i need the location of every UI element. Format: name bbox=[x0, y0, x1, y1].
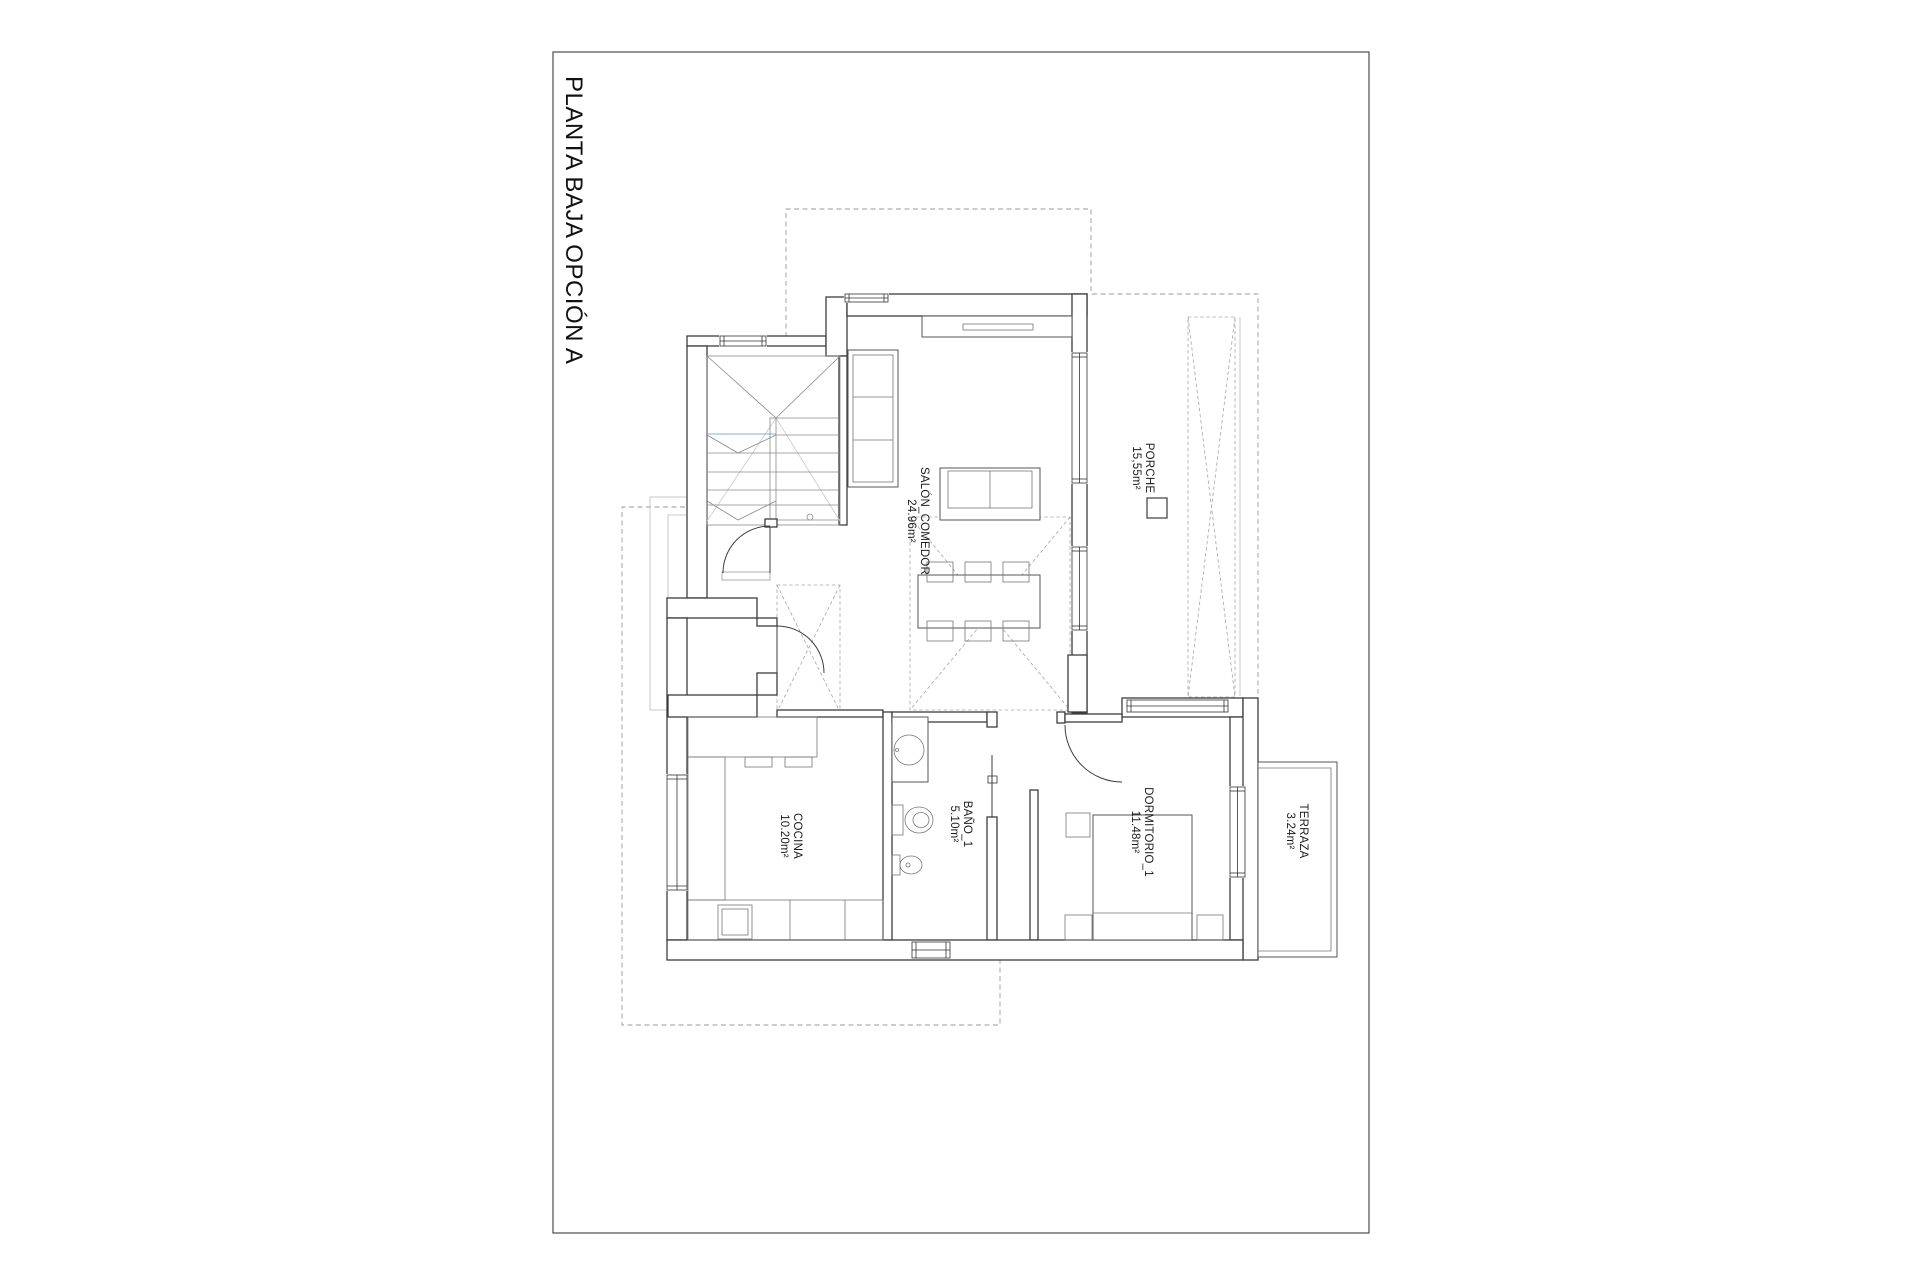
floor-plan-svg: PLANTA BAJA OPCIÓN A bbox=[0, 0, 1920, 1280]
room-area: 11.48m² bbox=[1129, 811, 1141, 854]
room-label-porche: PORCHE 15,55m² bbox=[1130, 443, 1155, 494]
dining-table bbox=[918, 575, 1040, 628]
room-name: COCINA bbox=[791, 813, 803, 859]
room-label-cocina: COCINA 10.20m² bbox=[778, 813, 803, 859]
room-name: DORMITORIO_1 bbox=[1142, 787, 1154, 877]
window-bano-south bbox=[911, 941, 951, 959]
room-name: TERRAZA bbox=[1297, 803, 1309, 858]
sofa bbox=[940, 468, 1040, 520]
window-dormitorio-east bbox=[1229, 786, 1246, 878]
porche-pillar bbox=[1147, 498, 1167, 518]
drawing-canvas: PLANTA BAJA OPCIÓN A bbox=[0, 0, 1920, 1280]
room-area: 10.20m² bbox=[778, 814, 790, 858]
room-name: PORCHE bbox=[1143, 443, 1155, 494]
room-name: SALÓN_COMEDOR bbox=[918, 467, 931, 575]
sheet-title: PLANTA BAJA OPCIÓN A bbox=[560, 76, 587, 364]
bath-vanity bbox=[892, 717, 928, 782]
room-area: 5.10m² bbox=[948, 806, 960, 843]
window-stair bbox=[719, 335, 767, 347]
window-salon-east-2 bbox=[1071, 546, 1088, 631]
room-area: 15,55m² bbox=[1130, 446, 1142, 490]
terraza-slab bbox=[1258, 762, 1337, 957]
shelf-unit bbox=[848, 350, 898, 487]
window-salon-clerestory bbox=[844, 293, 889, 303]
tv-bench bbox=[922, 316, 1072, 337]
room-area: 3.24m² bbox=[1284, 813, 1296, 850]
window-salon-east-1 bbox=[1071, 352, 1088, 484]
window-cocina-west bbox=[666, 774, 688, 891]
room-area: 24.96m² bbox=[905, 499, 917, 543]
room-name: BAÑO_1 bbox=[961, 801, 974, 848]
window-dormitorio-north bbox=[1126, 699, 1229, 713]
